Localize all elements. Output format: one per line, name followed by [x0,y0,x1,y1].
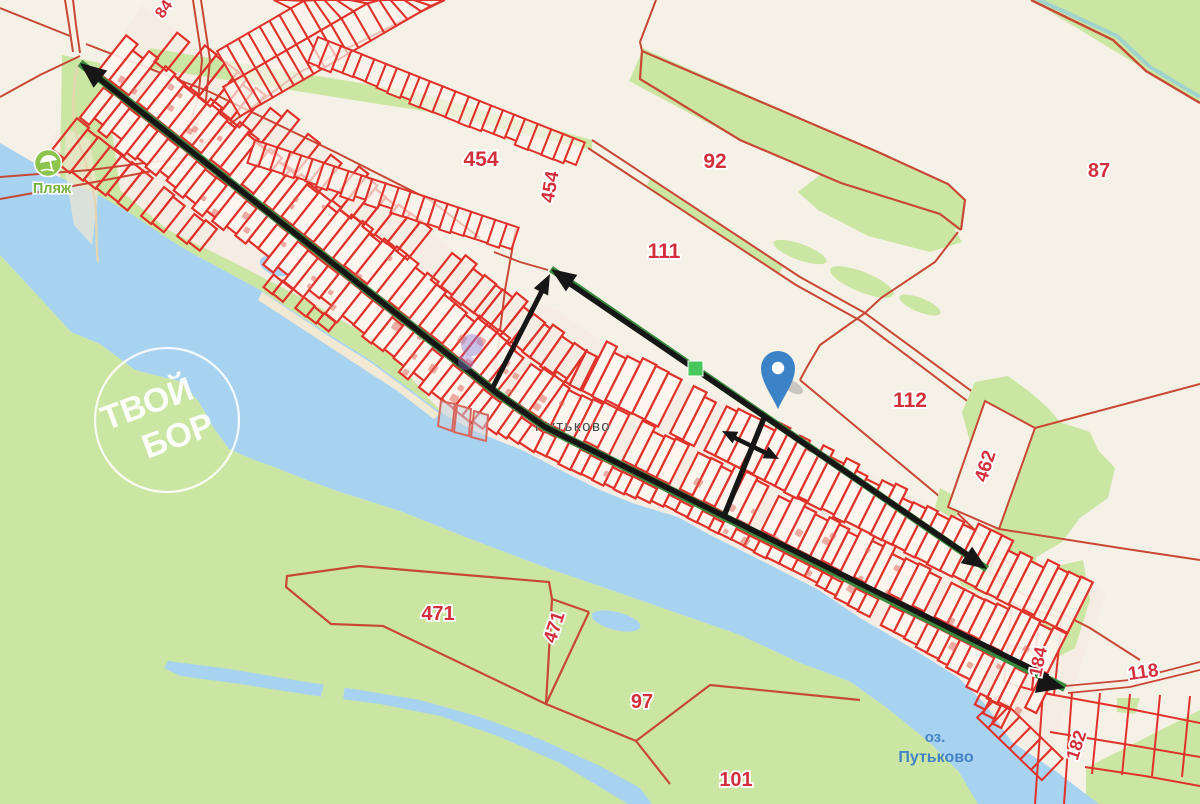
svg-text:112: 112 [893,389,927,412]
svg-text:Пляж: Пляж [33,181,72,197]
svg-text:118: 118 [1127,660,1160,685]
svg-text:87: 87 [1088,160,1110,182]
svg-text:97: 97 [631,691,653,713]
svg-text:454: 454 [463,148,498,171]
svg-text:101: 101 [719,769,752,791]
svg-text:оз.: оз. [925,729,946,746]
svg-text:111: 111 [648,240,681,263]
svg-text:471: 471 [421,603,454,625]
svg-text:Путьково: Путьково [898,749,973,766]
svg-text:92: 92 [703,150,726,173]
